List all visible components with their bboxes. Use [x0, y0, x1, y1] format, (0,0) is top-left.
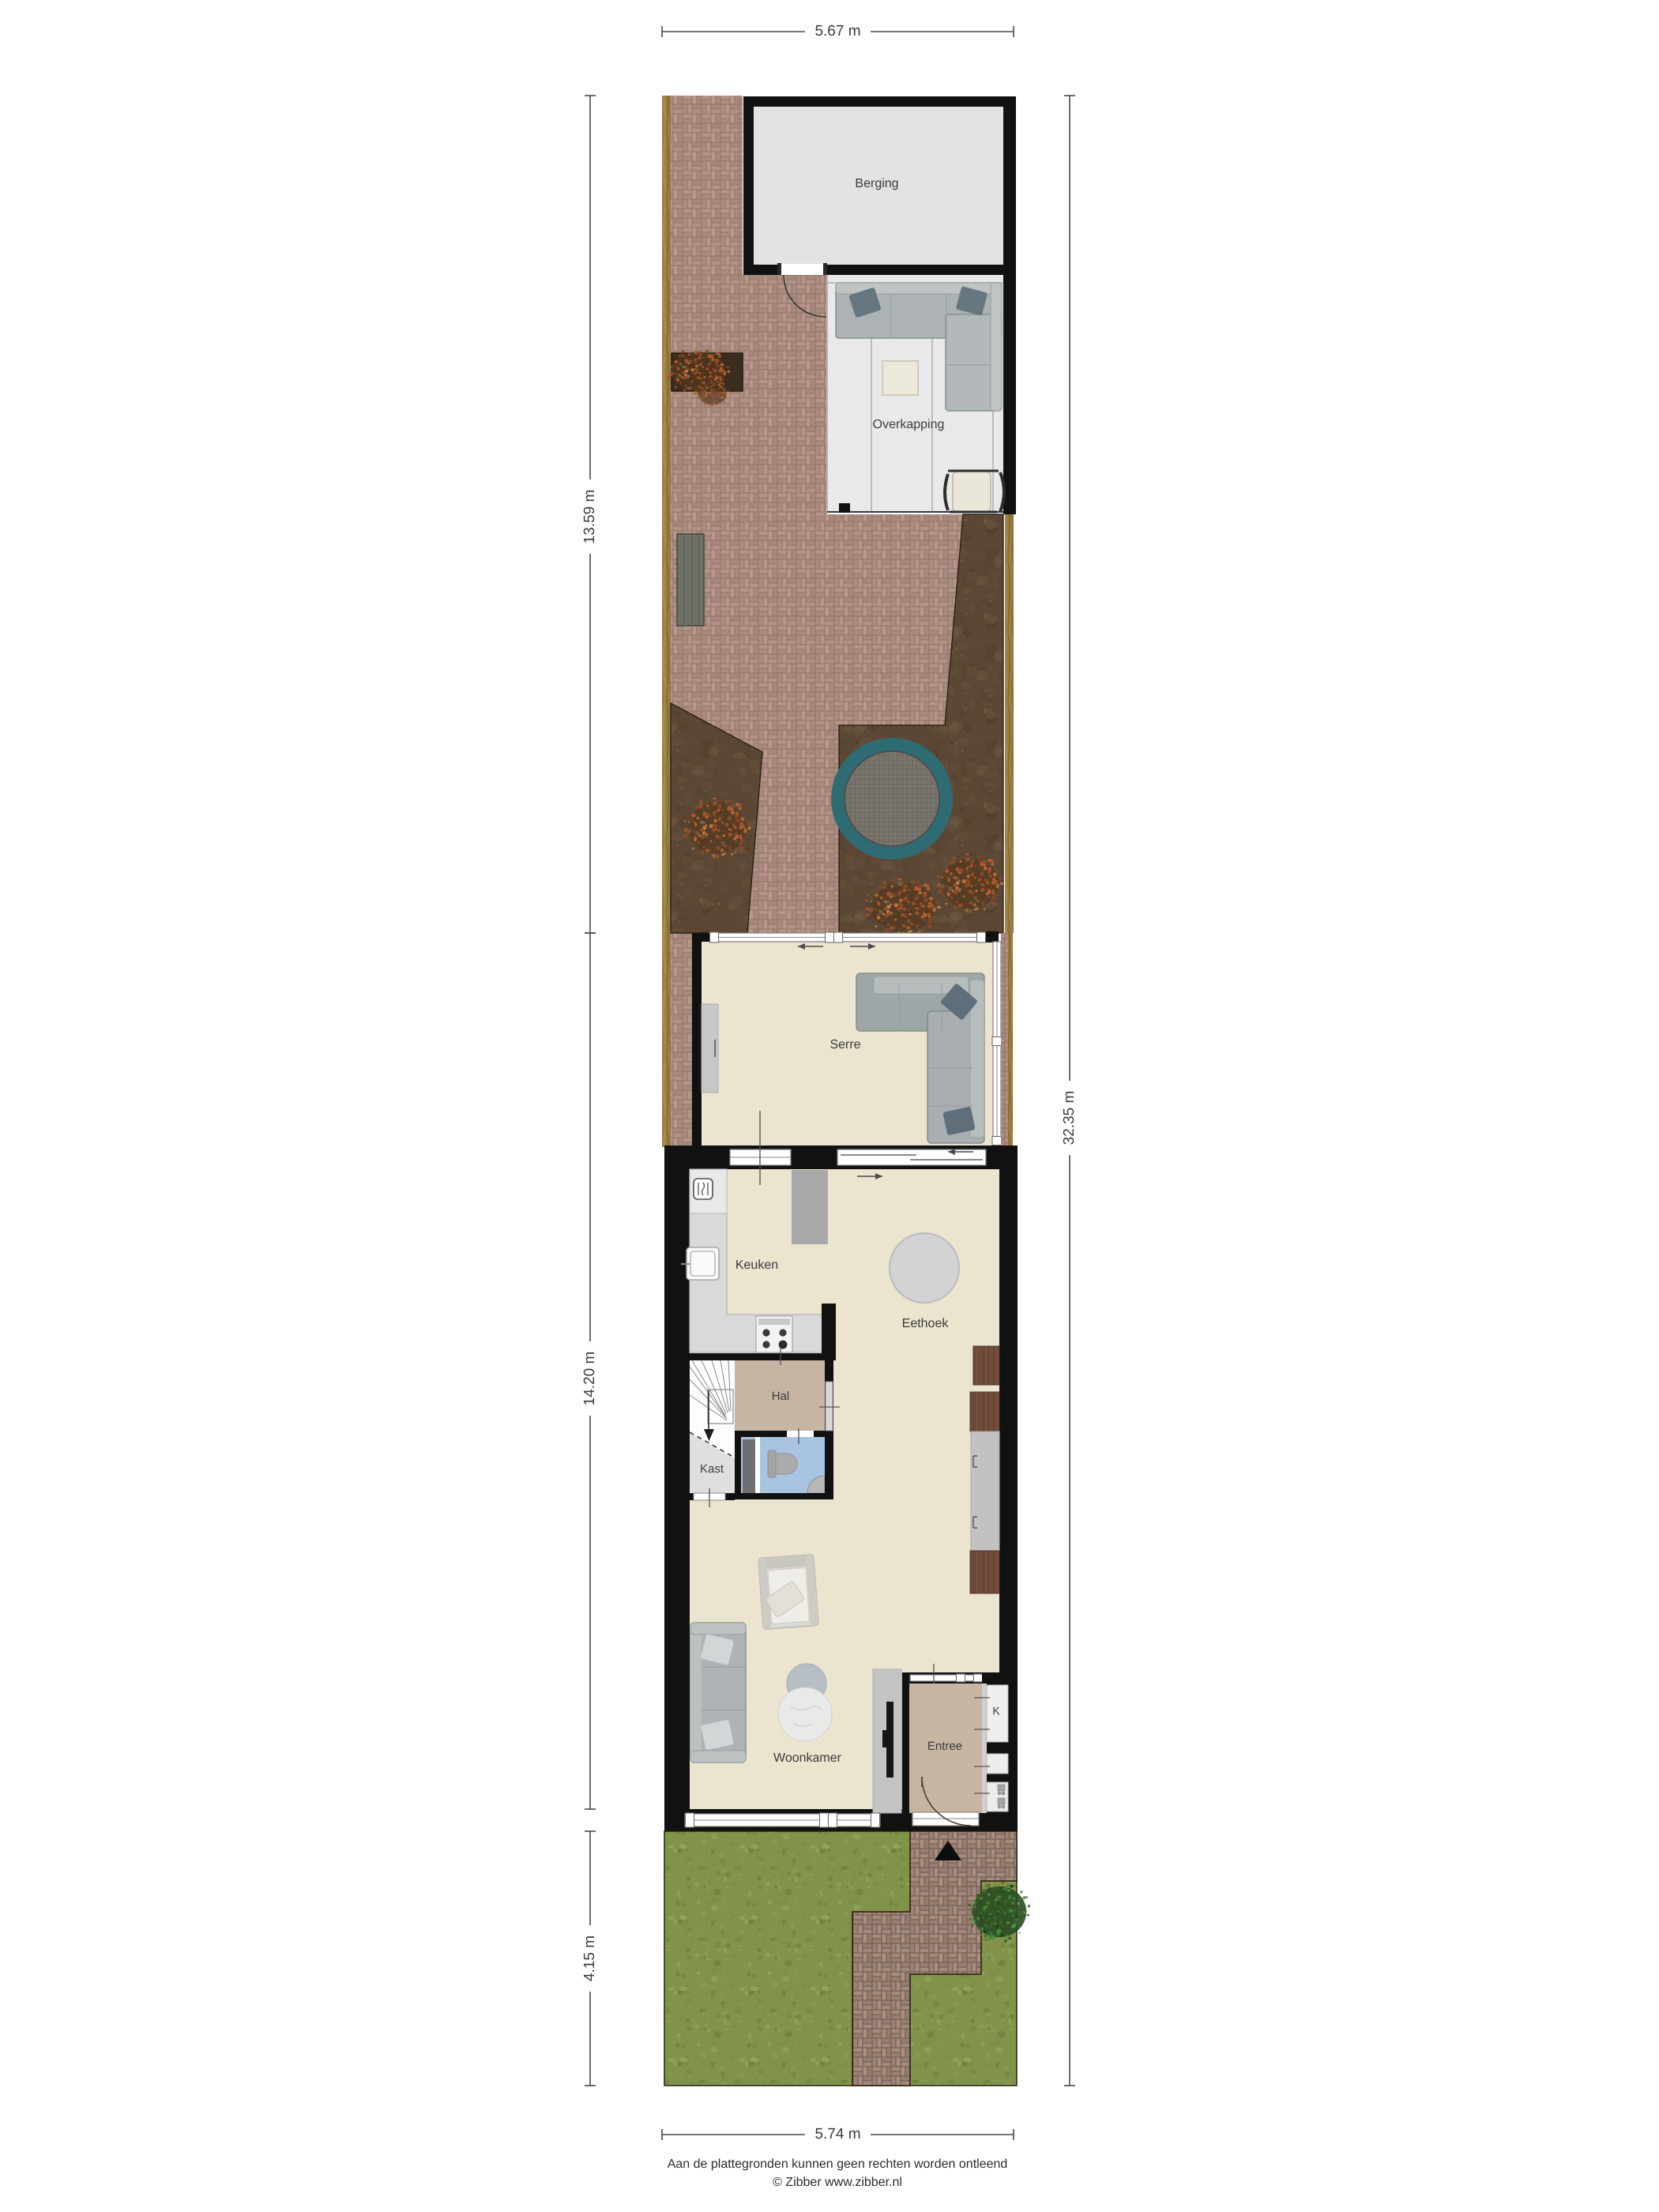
svg-text:5.67 m: 5.67 m: [814, 23, 860, 39]
svg-text:Kast: Kast: [700, 1462, 724, 1476]
svg-text:32.35 m: 32.35 m: [1061, 1091, 1078, 1145]
svg-text:5.74 m: 5.74 m: [814, 2126, 860, 2142]
svg-text:Berging: Berging: [855, 177, 898, 190]
svg-text:Overkapping: Overkapping: [873, 418, 945, 431]
svg-text:14.20 m: 14.20 m: [581, 1352, 598, 1406]
svg-text:13.59 m: 13.59 m: [581, 490, 598, 544]
svg-text:4.15 m: 4.15 m: [581, 1935, 598, 1981]
svg-text:Hal: Hal: [772, 1390, 790, 1403]
svg-text:K: K: [992, 1705, 1000, 1717]
svg-text:Woonkamer: Woonkamer: [773, 1751, 842, 1765]
svg-text:© Zibber www.zibber.nl: © Zibber www.zibber.nl: [773, 2176, 902, 2189]
svg-text:Serre: Serre: [829, 1038, 860, 1051]
svg-text:Aan de plattegronden kunnen ge: Aan de plattegronden kunnen geen rechten…: [668, 2157, 1008, 2171]
svg-text:Entree: Entree: [927, 1740, 962, 1753]
svg-text:Keuken: Keuken: [735, 1258, 778, 1272]
svg-text:Eethoek: Eethoek: [902, 1317, 950, 1330]
